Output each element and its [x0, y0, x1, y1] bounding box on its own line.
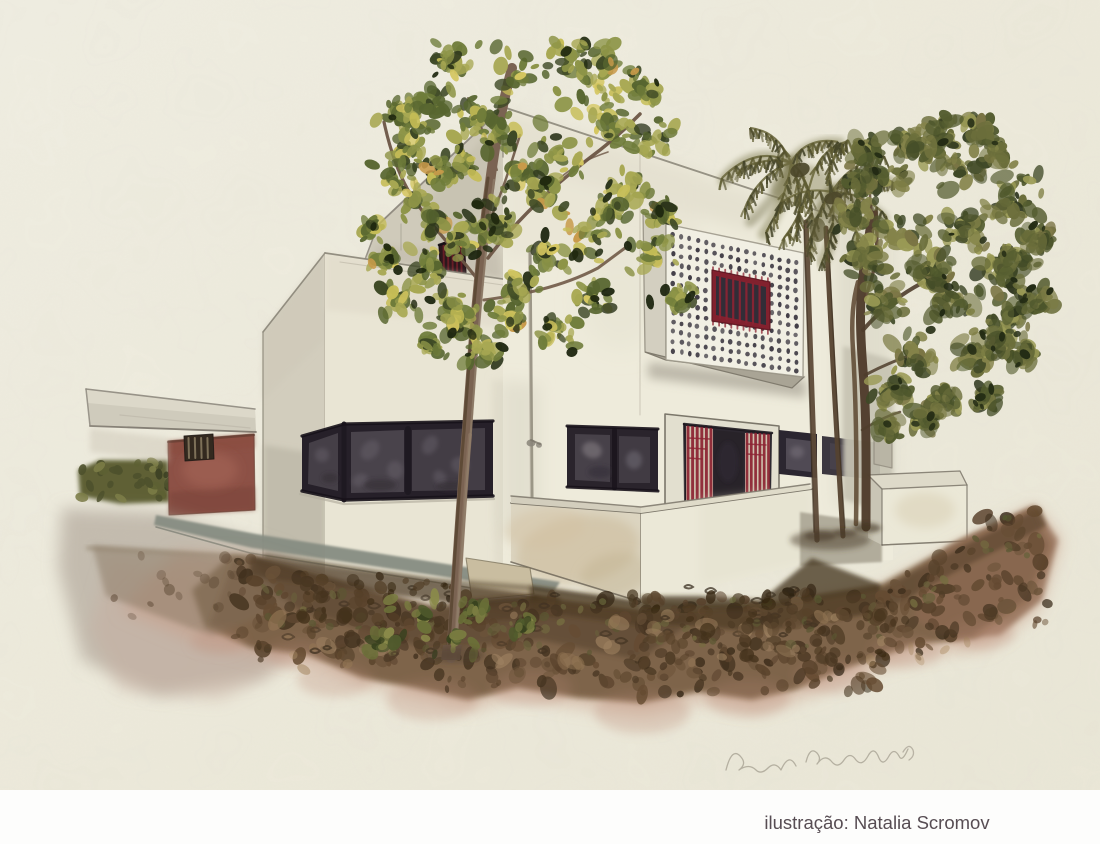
svg-text:ilustração: Natalia Scromov: ilustração: Natalia Scromov: [764, 812, 990, 833]
